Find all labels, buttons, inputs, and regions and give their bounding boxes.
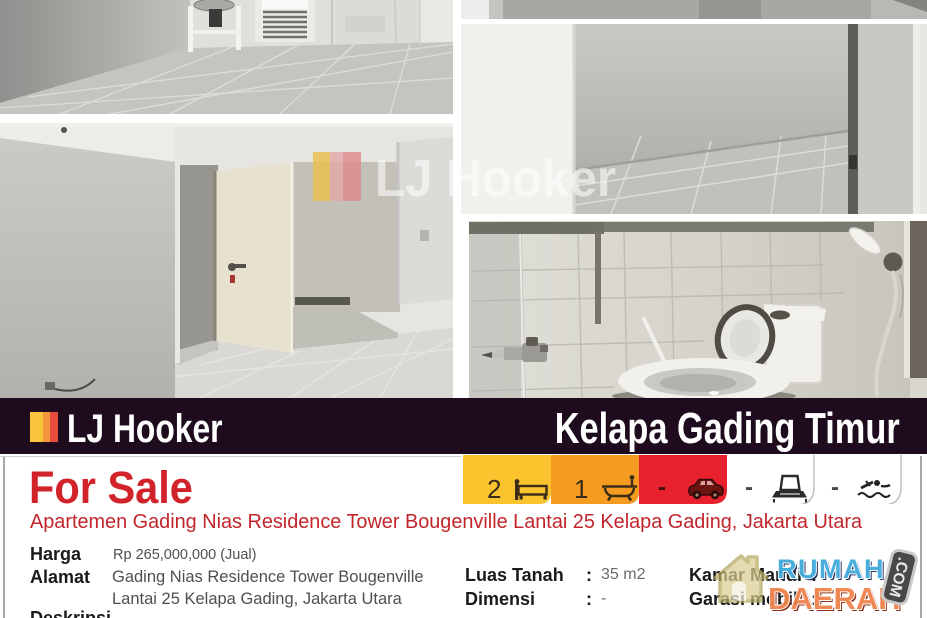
svg-text:2: 2 bbox=[487, 474, 501, 504]
svg-text:-: - bbox=[831, 474, 839, 501]
svg-text:-: - bbox=[745, 474, 753, 501]
svg-text:RUMAH: RUMAH bbox=[777, 554, 885, 584]
svg-text:1: 1 bbox=[574, 474, 588, 504]
svg-text:-: - bbox=[658, 474, 666, 501]
svg-text:DAERAH: DAERAH bbox=[768, 581, 901, 616]
